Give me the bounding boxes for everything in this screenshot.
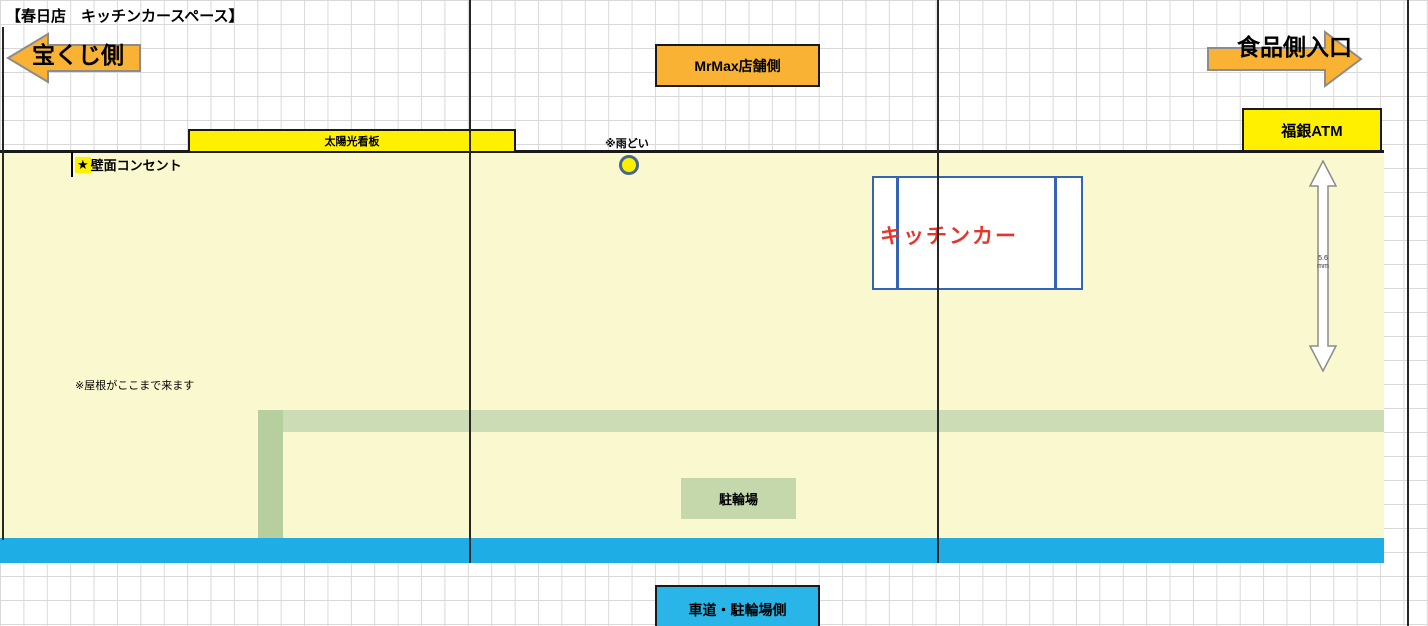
store-side-box: MrMax店舗側 bbox=[655, 44, 820, 87]
rain-gutter-icon bbox=[619, 155, 639, 175]
measure-value: 5.6 bbox=[1309, 255, 1337, 263]
left-wall-line bbox=[2, 27, 4, 540]
food-entrance-label: 食品側入口 bbox=[1237, 28, 1352, 62]
section-divider-1 bbox=[469, 0, 471, 563]
kitchen-car-label: キッチンカー bbox=[880, 220, 1018, 250]
star-icon: ★ bbox=[75, 157, 91, 173]
depth-measure-arrow: 5.6 mm bbox=[1309, 160, 1337, 372]
measure-unit: mm bbox=[1309, 263, 1337, 271]
floor-plan-canvas: 【春日店 キッチンカースペース】 宝くじ側 食品側入口 MrMax店舗側 福銀A… bbox=[0, 0, 1428, 626]
section-divider-2 bbox=[937, 0, 939, 563]
page-title: 【春日店 キッチンカースペース】 bbox=[6, 5, 243, 26]
kitchen-car-box: キッチンカー bbox=[872, 176, 1083, 290]
walkway-path-vertical bbox=[258, 410, 283, 540]
solar-sign-box: 太陽光看板 bbox=[188, 129, 516, 153]
roof-extent-note: ※屋根がここまで来ます bbox=[75, 377, 194, 393]
rain-gutter-note: ※雨どい bbox=[605, 135, 649, 151]
wall-outlet-text: 壁面コンセント bbox=[91, 155, 182, 174]
bicycle-parking-box: 駐輪場 bbox=[681, 478, 796, 519]
atm-box: 福銀ATM bbox=[1242, 108, 1382, 152]
kitchen-car-divider-right bbox=[1054, 178, 1057, 288]
measure-text: 5.6 mm bbox=[1309, 255, 1337, 271]
section-divider-right bbox=[1407, 0, 1409, 626]
walkway-path-horizontal bbox=[258, 410, 1384, 432]
wall-outlet-label: ★壁面コンセント bbox=[71, 152, 182, 177]
lottery-side-label: 宝くじ側 bbox=[32, 36, 124, 70]
road-side-box: 車道・駐輪場側 bbox=[655, 585, 820, 626]
roadway-strip bbox=[0, 538, 1384, 563]
